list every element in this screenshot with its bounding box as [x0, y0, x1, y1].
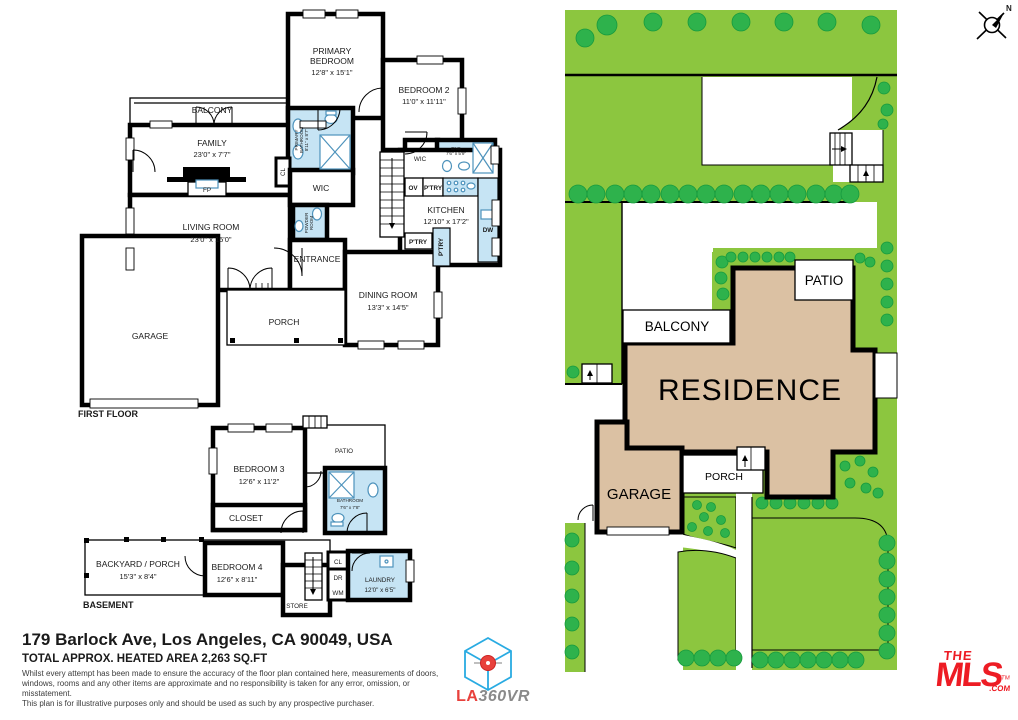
plan-drawing: RESIDENCE BALCONY PATIO GARAGE PORCH: [0, 0, 1018, 720]
disclaimer-line3: This plan is for illustrative purposes o…: [22, 699, 452, 709]
compass-n-label: N: [1006, 4, 1012, 13]
porch-steps: [737, 447, 765, 470]
site-plan: RESIDENCE BALCONY PATIO GARAGE PORCH: [565, 10, 897, 672]
dining-label: DINING ROOM: [359, 290, 418, 300]
fp-label: FP: [203, 187, 211, 194]
garage-room: [82, 236, 218, 405]
bedroom2-dims: 11'0" x 11'11": [402, 97, 446, 106]
ov-label: OV: [408, 185, 418, 192]
address: 179 Barlock Ave, Los Angeles, CA 90049, …: [22, 630, 452, 650]
entrance-label: ENTRANCE: [294, 254, 341, 264]
living-dims: 23'0" x 15'0": [190, 235, 231, 244]
store-label: STORE: [286, 603, 308, 610]
ens-dims: 7'6" x 5'9": [446, 151, 466, 156]
la360vr-la: LA: [456, 688, 478, 705]
floorplan-sheet: RESIDENCE BALCONY PATIO GARAGE PORCH: [0, 0, 1018, 720]
bedroom4-dims: 12'6" x 8'11": [217, 575, 258, 584]
la360vr-logo: LA360VR: [448, 688, 538, 706]
basement-label: BASEMENT: [83, 600, 134, 610]
disclaimer-line1: Whilst every attempt has been made to en…: [22, 669, 452, 679]
closet-label: CLOSET: [229, 513, 263, 523]
family-label: FAMILY: [197, 138, 227, 148]
primary-bedroom: [288, 14, 383, 118]
laundry-dims: 12'0" x 6'5": [364, 587, 395, 594]
bathroom-label: BATHROOM: [337, 498, 363, 503]
bedroom2-label: BEDROOM 2: [398, 85, 449, 95]
kitchen-dims: 12'10" x 17'2": [423, 217, 469, 226]
dining-dims: 13'3" x 14'5": [367, 303, 408, 312]
site-residence-label: RESIDENCE: [658, 374, 842, 407]
primary-bedroom-label2: BEDROOM: [310, 56, 354, 66]
stairs-first-floor: [380, 152, 404, 237]
living-label: LIVING ROOM: [183, 222, 240, 232]
mls-logo: THE MLSTM .COM: [934, 650, 1014, 693]
family-dims: 23'0" x 7'7": [194, 150, 231, 159]
patio-basement-label: PATIO: [335, 448, 353, 455]
ptry-label2: P'TRY: [409, 239, 428, 246]
cl2-label: CL: [334, 559, 343, 566]
bedroom3-dims: 12'6" x 11'2": [239, 477, 280, 486]
site-porch-label: PORCH: [705, 471, 743, 483]
backyard-dims: 15'3" x 8'4": [120, 572, 157, 581]
cl-label: CL: [280, 167, 287, 176]
dw-label: DW: [483, 227, 494, 234]
primary-bedroom-label1: PRIMARY: [313, 46, 352, 56]
basement-plan: BEDROOM 3 12'6" x 11'2" PATIO BATHROOM 7…: [83, 416, 414, 615]
porch-label: PORCH: [269, 317, 300, 327]
primary-bedroom-dims: 12'8" x 15'1": [311, 68, 352, 77]
site-patio-label: PATIO: [805, 273, 844, 288]
laundry-fixtures: [380, 556, 393, 567]
balcony-label: BALCONY: [192, 105, 233, 115]
backyard-label: BACKYARD / PORCH: [96, 559, 180, 569]
wm-label: WM: [332, 590, 343, 597]
heated-area: TOTAL APPROX. HEATED AREA 2,263 SQ.FT: [22, 653, 452, 665]
powder-label2: ROOM: [309, 216, 314, 230]
footer: 179 Barlock Ave, Los Angeles, CA 90049, …: [22, 630, 452, 709]
la360vr-rest: 360VR: [478, 688, 529, 705]
primary-bath-dims: 8'11" x 8'7": [304, 128, 309, 151]
first-floor-label: FIRST FLOOR: [78, 409, 138, 419]
bedroom3-label: BEDROOM 3: [233, 464, 284, 474]
disclaimer-line2: windows, rooms and any other items are a…: [22, 679, 452, 699]
site-balcony-label: BALCONY: [645, 319, 710, 334]
site-garage-label: GARAGE: [607, 486, 671, 503]
ptry-label3: P'TRY: [438, 237, 445, 256]
kitchen-label: KITCHEN: [427, 205, 464, 215]
compass: N: [977, 4, 1012, 39]
first-floor-plan: BALCONY FAMILY 23'0" x 7'7" PRIMARY BEDR…: [78, 10, 500, 419]
laundry-label: LAUNDRY: [365, 577, 396, 584]
garage-label: GARAGE: [132, 331, 169, 341]
dr-label: DR: [333, 575, 343, 582]
bathroom-dims: 7'6" x 7'8": [340, 505, 360, 510]
wic-label: WIC: [313, 183, 330, 193]
la360vr-cube-icon: [465, 638, 511, 690]
wic2-label: WIC: [414, 156, 427, 163]
mls-tm: TM: [1001, 676, 1010, 682]
disclaimer: Whilst every attempt has been made to en…: [22, 669, 452, 709]
entrance-hall: [290, 240, 345, 290]
bedroom4-label: BEDROOM 4: [211, 562, 262, 572]
ptry-label1: P'TRY: [424, 185, 443, 192]
